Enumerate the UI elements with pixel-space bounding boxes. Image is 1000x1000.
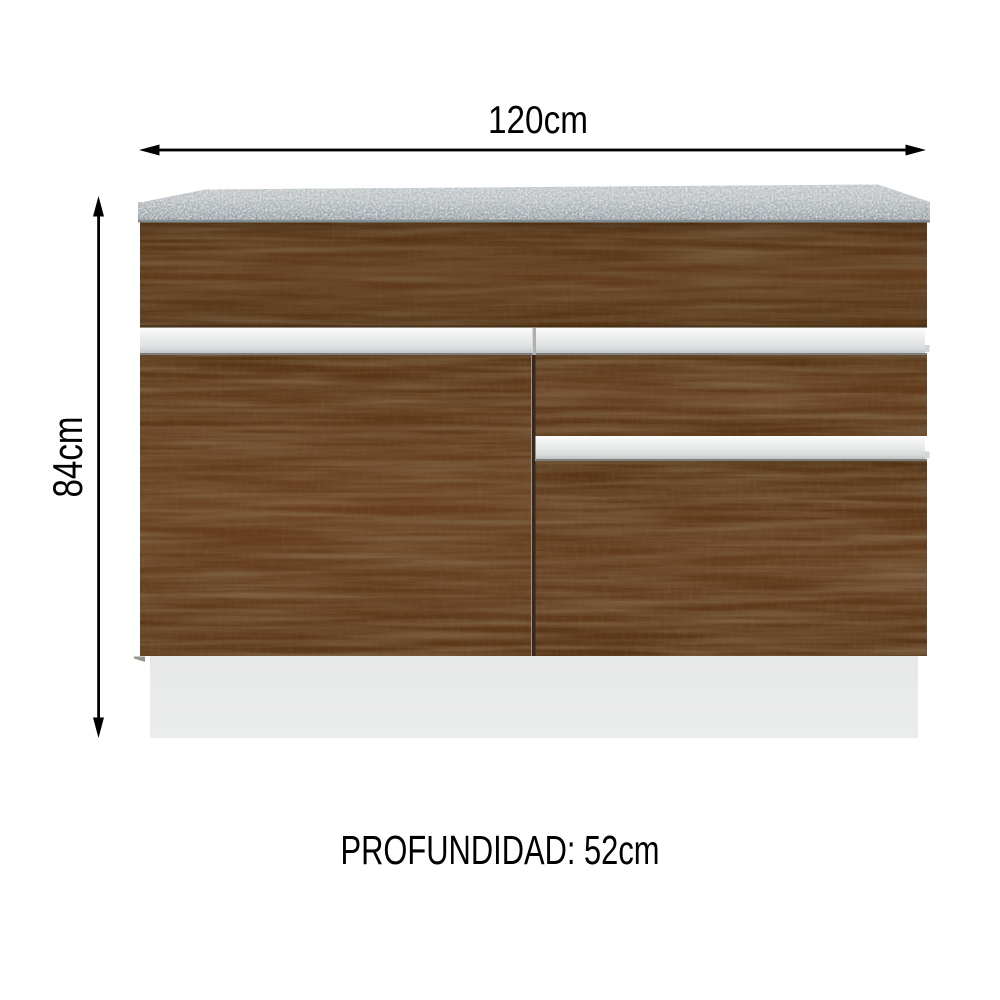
svg-text:PROFUNDIDAD: 52cm: PROFUNDIDAD: 52cm bbox=[341, 827, 660, 873]
svg-text:84cm: 84cm bbox=[44, 417, 91, 498]
svg-text:120cm: 120cm bbox=[488, 99, 588, 142]
